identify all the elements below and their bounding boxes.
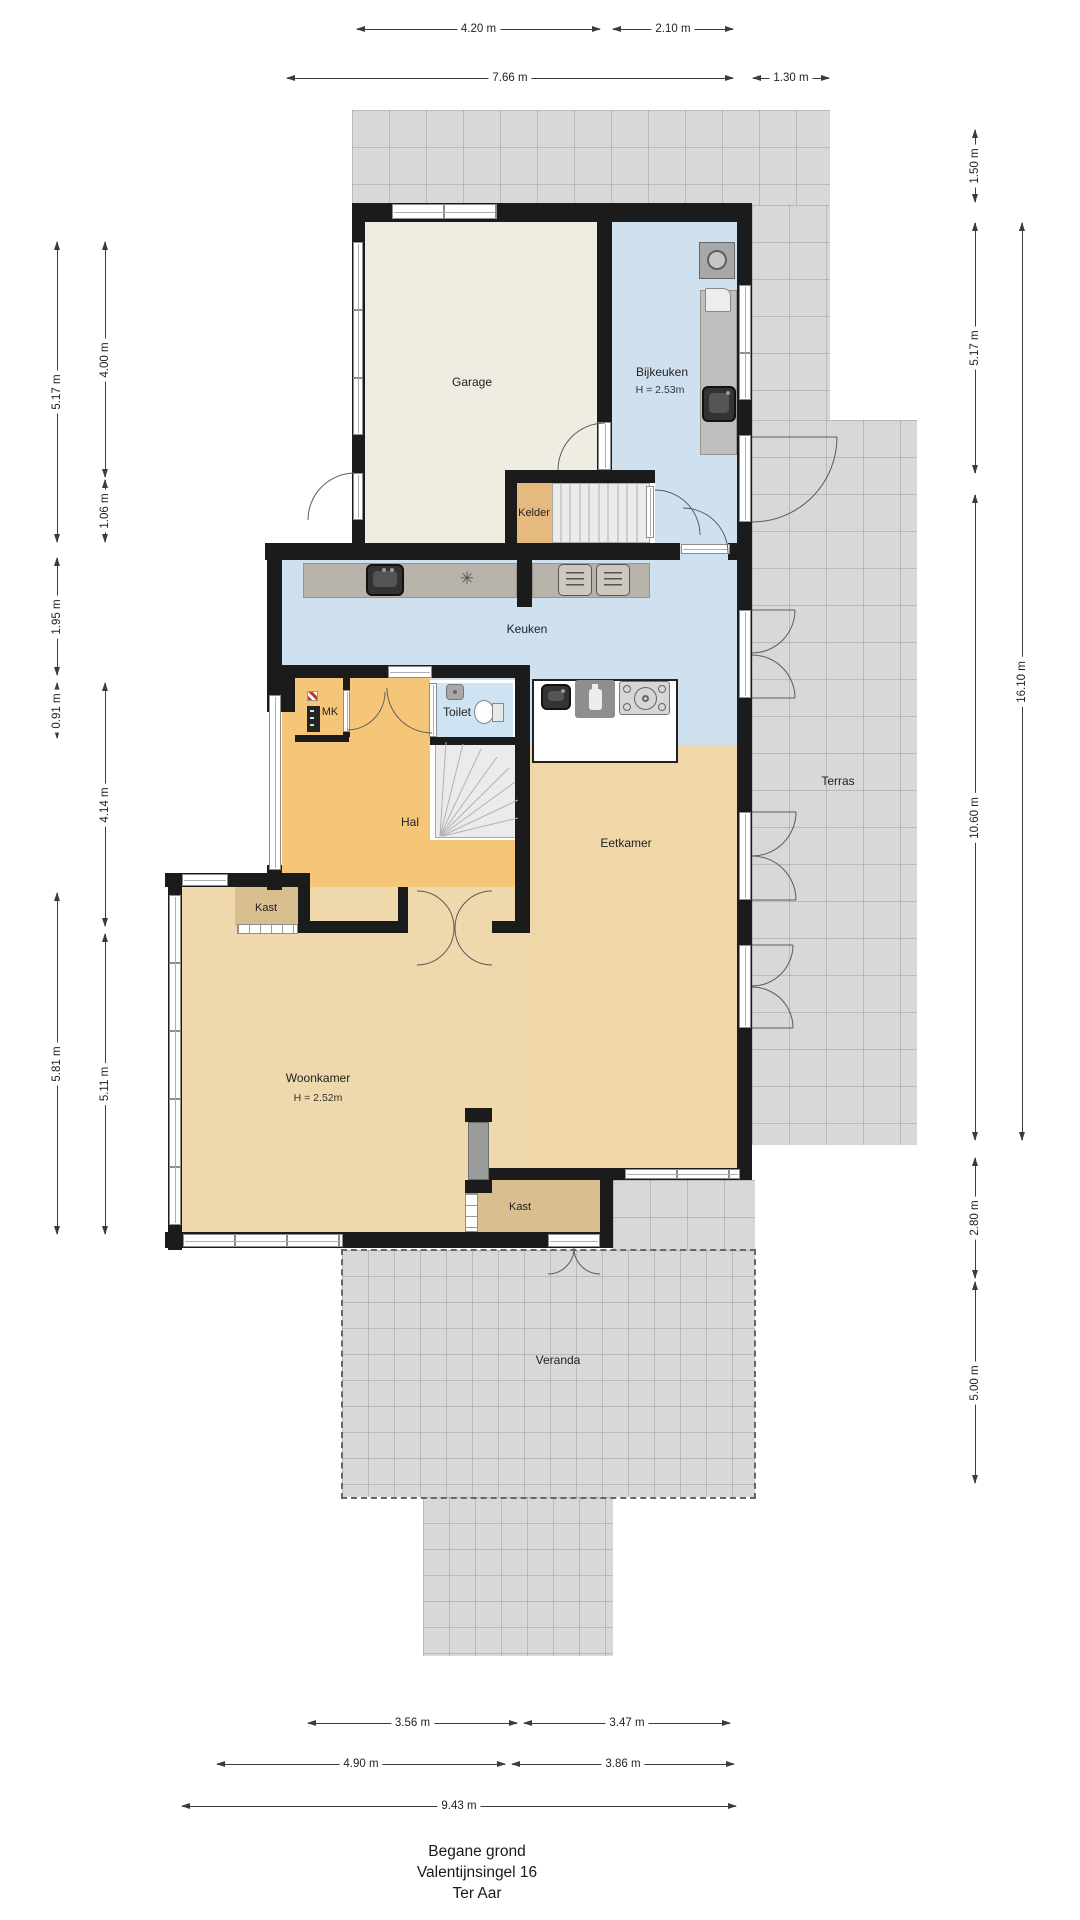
keuken-label: Keuken — [507, 622, 548, 636]
dim-left-091: 0.91 m — [57, 683, 58, 738]
keuken-sink-icon — [366, 564, 404, 596]
dim-bottom-356: 3.56 m — [308, 1723, 517, 1724]
dim-left-414: 4.14 m — [105, 683, 106, 926]
bijkeuken-label: Bijkeuken — [636, 365, 688, 379]
mk-label: MK — [322, 706, 339, 718]
terras-tiles-right-strip — [752, 205, 830, 420]
dim-bottom-943: 9.43 m — [182, 1806, 736, 1807]
wall — [310, 921, 398, 933]
island-sink-icon — [541, 684, 571, 710]
dim-top-130: 1.30 m — [753, 78, 829, 79]
garage-label: Garage — [452, 375, 492, 389]
dim-right-150: 1.50 m — [975, 130, 976, 202]
wall — [295, 735, 349, 742]
keuken-door-opening — [681, 544, 730, 554]
oven-icon — [596, 564, 630, 596]
tiles-bottom-block — [423, 1497, 613, 1656]
floorplan: ✳ G — [0, 0, 1080, 1920]
terras-tiles-top — [352, 110, 830, 205]
wall — [398, 887, 408, 933]
kelder-stairs — [552, 483, 650, 543]
garage-bijkeuken-door-opening — [598, 422, 611, 470]
terras-label: Terras — [821, 774, 854, 788]
french-door-2 — [739, 812, 751, 900]
fireplace — [468, 1122, 489, 1180]
veranda-outline — [341, 1249, 756, 1499]
fireplace-cap-bottom — [465, 1180, 492, 1193]
wall — [600, 1168, 613, 1248]
oven-icon — [558, 564, 592, 596]
hal-door-opening — [388, 666, 432, 678]
dim-left-581: 5.81 m — [57, 893, 58, 1234]
dim-left-195: 1.95 m — [57, 558, 58, 675]
dim-left-400: 4.00 m — [105, 242, 106, 477]
wall — [517, 543, 532, 607]
wall — [515, 665, 530, 933]
dim-bottom-490: 4.90 m — [217, 1764, 505, 1765]
kast-woonkamer-label: Kast — [509, 1201, 531, 1213]
veranda-label: Veranda — [536, 1353, 581, 1367]
kettle-icon — [575, 680, 615, 718]
address-line: Valentijnsingel 16 — [417, 1864, 537, 1882]
woonkamer-top-window — [182, 874, 228, 886]
toilet-bowl-icon — [474, 700, 494, 724]
dim-right-500: 5.00 m — [975, 1282, 976, 1483]
wall — [265, 543, 680, 560]
garage-door-window — [392, 204, 497, 219]
kelder-label: Kelder — [518, 507, 550, 519]
dim-top-420: 4.20 m — [357, 29, 600, 30]
wall — [430, 737, 530, 745]
cooktop-icon — [619, 681, 670, 715]
kast-hal-label: Kast — [255, 902, 277, 914]
washing-machine-icon — [699, 242, 735, 279]
plan-title: Begane grond — [428, 1843, 525, 1861]
toilet-label: Toilet — [443, 705, 471, 719]
garage-side-door-opening — [353, 473, 363, 520]
hal-label: Hal — [401, 815, 419, 829]
meter-cabinet-icon — [307, 706, 320, 732]
freezer-icon: ✳ — [460, 569, 474, 589]
meter-stripes-icon — [307, 691, 318, 701]
french-door-1 — [739, 610, 751, 698]
terras-tiles-below-eetkamer — [613, 1180, 755, 1252]
dim-left-511: 5.11 m — [105, 934, 106, 1234]
mk-door-opening — [343, 690, 350, 732]
toilet-basin-icon — [446, 684, 464, 700]
terras-door-opening — [739, 435, 751, 522]
kast-woonkamer-shelf — [465, 1193, 478, 1232]
bijkeuken-counter — [700, 290, 737, 455]
hal-left-window — [269, 695, 281, 870]
woonkamer-height-label: H = 2.52m — [294, 1092, 343, 1104]
kelder-stairs-door-opening — [646, 486, 654, 538]
dim-bottom-347: 3.47 m — [524, 1723, 730, 1724]
kast-woonkamer-floor — [478, 1180, 600, 1232]
wall — [478, 1168, 600, 1180]
fireplace-cap-top — [465, 1108, 492, 1122]
bijkeuken-sink-icon — [702, 386, 736, 422]
woonkamer-bottom-window — [183, 1234, 343, 1247]
wall — [505, 470, 655, 483]
eetkamer-bottom-window — [625, 1169, 740, 1179]
dim-top-210: 2.10 m — [613, 29, 733, 30]
french-door-3 — [739, 945, 751, 1028]
dim-right-280: 2.80 m — [975, 1158, 976, 1278]
kast-hal-shelf — [237, 924, 298, 934]
toilet-tank-icon — [492, 703, 504, 722]
bijkeuken-height-label: H = 2.53m — [636, 384, 685, 396]
dim-left-106: 1.06 m — [105, 480, 106, 542]
wall — [505, 483, 517, 545]
main-stairs — [435, 742, 518, 838]
eetkamer-floor — [530, 745, 737, 1168]
dim-right-1610: 16.10 m — [1022, 223, 1023, 1140]
keuken-counter-left — [303, 563, 517, 598]
wall — [298, 873, 310, 933]
dim-right-1060: 10.60 m — [975, 495, 976, 1140]
city-line: Ter Aar — [452, 1885, 501, 1903]
laundry-basket-icon — [705, 288, 731, 312]
dim-top-766: 7.66 m — [287, 78, 733, 79]
bijkeuken-window — [739, 285, 751, 400]
veranda-door-opening — [548, 1234, 600, 1247]
dim-bottom-386: 3.86 m — [512, 1764, 734, 1765]
woonkamer-label: Woonkamer — [286, 1071, 350, 1085]
dim-right-517: 5.17 m — [975, 223, 976, 473]
toilet-door-opening — [429, 683, 437, 737]
woonkamer-left-window — [169, 895, 181, 1225]
eetkamer-label: Eetkamer — [600, 836, 651, 850]
dim-left-517: 5.17 m — [57, 242, 58, 542]
wall — [492, 921, 530, 933]
garage-left-window — [353, 242, 363, 435]
